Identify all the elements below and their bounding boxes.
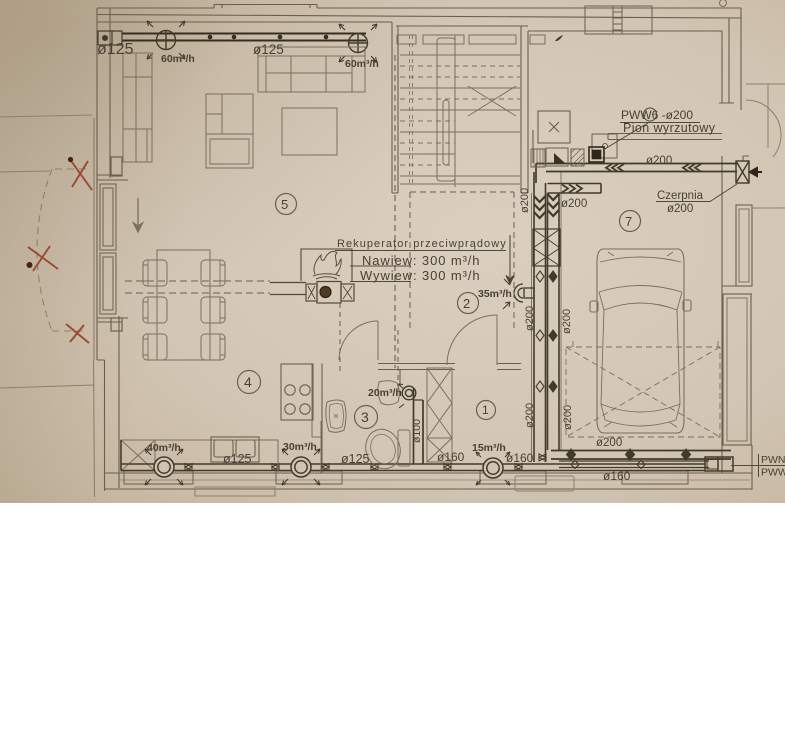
svg-text:ø200: ø200 — [524, 306, 536, 331]
svg-text:ø200: ø200 — [596, 437, 622, 449]
svg-text:35m³/h: 35m³/h — [478, 288, 512, 300]
svg-text:15m³/h: 15m³/h — [472, 442, 506, 454]
svg-text:ø125: ø125 — [253, 42, 284, 57]
svg-text:Rekuperator przeciwprądowy: Rekuperator przeciwprądowy — [337, 238, 507, 250]
svg-text:4: 4 — [244, 374, 252, 390]
svg-text:5: 5 — [281, 197, 288, 212]
svg-text:7: 7 — [625, 214, 632, 229]
svg-text:ø200: ø200 — [519, 188, 531, 213]
svg-text:ø160: ø160 — [437, 450, 465, 464]
svg-text:ø200: ø200 — [646, 155, 672, 167]
svg-text:60m³/h: 60m³/h — [345, 58, 379, 70]
svg-text:PWW6 -ø200: PWW6 -ø200 — [621, 108, 693, 122]
svg-text:2: 2 — [463, 296, 470, 311]
svg-text:Nawiew: 300 m³/h: Nawiew: 300 m³/h — [362, 253, 480, 268]
svg-text:ø125: ø125 — [223, 452, 252, 466]
svg-text:ø200: ø200 — [524, 403, 536, 428]
svg-text:Czerpnia: Czerpnia — [657, 190, 704, 202]
svg-text:ø160: ø160 — [603, 469, 631, 483]
svg-text:Wywiew: 300 m³/h: Wywiew: 300 m³/h — [360, 268, 480, 283]
svg-text:3: 3 — [361, 409, 369, 425]
svg-text:PWN: PWN — [761, 454, 785, 466]
svg-text:PWW: PWW — [761, 467, 785, 479]
svg-text:ø200: ø200 — [562, 405, 574, 430]
svg-text:ø200: ø200 — [561, 198, 587, 210]
svg-text:1: 1 — [482, 403, 489, 417]
svg-text:ø200: ø200 — [667, 203, 693, 215]
svg-text:ø100: ø100 — [411, 419, 423, 443]
svg-text:ø160: ø160 — [506, 451, 534, 465]
svg-text:ø125: ø125 — [341, 452, 370, 466]
svg-text:60m³/h: 60m³/h — [161, 53, 195, 65]
svg-text:ø125: ø125 — [97, 41, 134, 58]
svg-text:Pion wyrzutowy: Pion wyrzutowy — [623, 121, 716, 135]
svg-text:ø200: ø200 — [561, 309, 573, 334]
svg-text:40m³/h: 40m³/h — [147, 442, 181, 454]
svg-text:30m³/h: 30m³/h — [283, 441, 317, 453]
svg-text:20m³/h: 20m³/h — [368, 387, 402, 399]
